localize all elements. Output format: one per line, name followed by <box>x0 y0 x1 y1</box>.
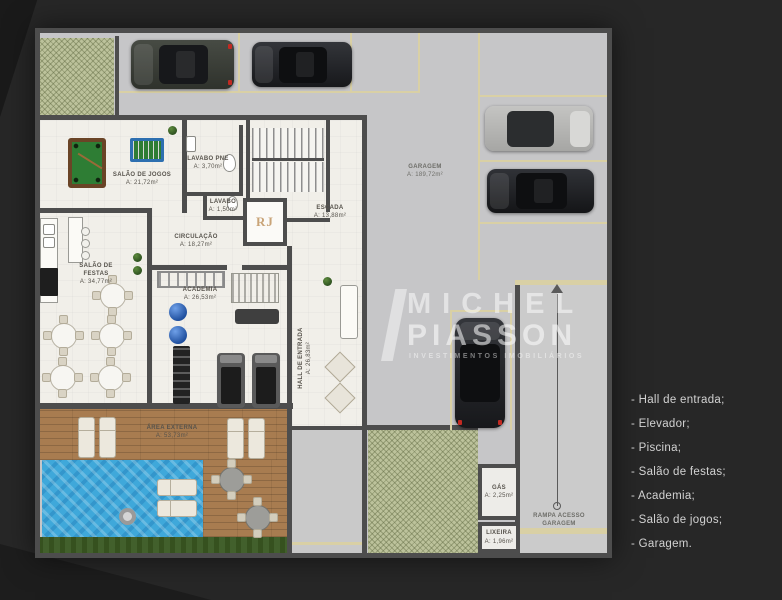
swimming-pool <box>42 460 203 537</box>
amenity-item: - Piscina; <box>631 442 726 456</box>
car-hood <box>490 173 509 209</box>
landscape-hatch-bottom <box>368 430 478 553</box>
table-top <box>51 323 77 349</box>
table-top <box>245 505 271 531</box>
sink-icon <box>186 136 196 152</box>
parking-stall-line <box>418 33 420 91</box>
sun-lounger <box>78 417 95 458</box>
room-label-gas: GÁS A: 2,25m² <box>485 484 514 500</box>
car-hood <box>255 46 273 83</box>
stair-treads-upper <box>252 128 324 158</box>
sun-lounger <box>99 417 116 458</box>
billiards-table <box>68 138 106 188</box>
wall <box>362 115 367 553</box>
walkway-step-line <box>292 542 362 545</box>
treadmill-console <box>220 355 242 363</box>
sun-lounger <box>227 418 244 459</box>
car-taillight <box>228 44 232 49</box>
wall <box>35 208 152 213</box>
pool-cue <box>78 153 103 170</box>
wall <box>147 265 227 270</box>
room-label-salao-jogos: SALÃO DE JOGOSA: 21,72m² <box>112 171 172 187</box>
dumbbell-rack <box>173 346 190 404</box>
room-label-rampa: RAMPA ACESSO GARAGEM <box>527 512 591 528</box>
wall <box>147 208 152 403</box>
car-sedan-black <box>252 42 352 87</box>
treadmill <box>252 353 280 408</box>
amenities-list: - Hall de entrada; - Elevador; - Piscina… <box>631 394 726 562</box>
plant-icon <box>133 266 142 275</box>
room-label-hall-entrada: HALL DE ENTRADAA: 26,83m² <box>297 313 313 403</box>
table-top <box>98 365 124 391</box>
reception-desk <box>340 285 358 339</box>
watermark-tagline: INVESTIMENTOS IMOBILIÁRIOS <box>409 353 584 360</box>
sun-lounger <box>248 418 265 459</box>
table-top <box>219 467 245 493</box>
chair-icon <box>243 475 252 484</box>
parking-stall-line <box>478 95 607 97</box>
car-taillight <box>498 420 502 425</box>
wall <box>287 246 292 553</box>
exercise-ball-icon <box>169 326 187 344</box>
chair-icon <box>58 357 67 366</box>
wall <box>326 120 330 212</box>
wall <box>242 265 292 270</box>
plant-icon <box>168 126 177 135</box>
wall <box>185 192 243 196</box>
watermark-brand-line1: MICHEL <box>407 288 584 321</box>
parking-stall-line <box>478 33 480 280</box>
chair-icon <box>106 389 115 398</box>
elevator-brand-monogram: RJ <box>256 214 274 230</box>
room-label-circulacao: CIRCULAÇÃOA: 18,27m² <box>172 233 220 249</box>
chair-icon <box>59 347 68 356</box>
ramp-top-stripe <box>515 280 612 285</box>
car-taillight <box>228 80 232 85</box>
wall <box>35 115 367 120</box>
car-roof <box>176 51 195 78</box>
treadmill <box>217 353 245 408</box>
exercise-ball-icon <box>169 303 187 321</box>
chair-icon <box>211 475 220 484</box>
car-roof <box>534 179 553 204</box>
chair-icon <box>122 373 131 382</box>
chair-icon <box>90 373 99 382</box>
cable-machine <box>231 273 279 303</box>
room-label-lavabo: LAVABOA: 1,50m² <box>203 198 243 214</box>
gym-bench <box>235 309 279 324</box>
chair-icon <box>58 389 67 398</box>
amenity-item: - Hall de entrada; <box>631 394 726 408</box>
table-top <box>50 365 76 391</box>
pool-lounger <box>157 479 197 496</box>
room-label-area-externa: ÁREA EXTERNAA: 53,73m² <box>143 424 201 440</box>
room-label-lavabo-pne: LAVABO PNEA: 3,70m² <box>187 155 229 171</box>
car-trunk <box>570 111 589 147</box>
amenity-item: - Salão de festas; <box>631 466 726 480</box>
bar-stool-icon <box>81 239 90 248</box>
car-roof <box>296 52 314 77</box>
table-top <box>99 323 125 349</box>
room-label-lixeira: LIXEIRA A: 1,96m² <box>485 529 514 545</box>
gas-room: GÁS A: 2,25m² <box>478 464 520 520</box>
chair-icon <box>107 315 116 324</box>
chair-icon <box>124 291 133 300</box>
bar-stool-icon <box>81 227 90 236</box>
patio-table <box>212 460 252 500</box>
patio-table <box>238 498 278 538</box>
watermark-brand-line2: PIASSON <box>407 319 577 353</box>
chair-icon <box>59 315 68 324</box>
treadmill-console <box>255 355 277 363</box>
wall <box>239 125 243 196</box>
treadmill-belt <box>221 367 241 404</box>
ramp-bottom-stripe <box>520 528 612 534</box>
chair-icon <box>74 373 83 382</box>
car-glass <box>507 111 555 147</box>
car-taillight <box>458 420 462 425</box>
room-label-salao-festas: SALÃO DE FESTASA: 34,77m² <box>66 262 126 286</box>
round-table <box>44 316 84 356</box>
wall <box>115 36 119 120</box>
elevator: RJ <box>243 198 287 246</box>
wall <box>292 426 362 430</box>
amenity-item: - Garagem. <box>631 538 726 552</box>
round-table <box>91 358 131 398</box>
landscape-hatch-top-left <box>38 38 114 120</box>
room-label-escada: ESCADAA: 13,88m² <box>307 204 353 220</box>
wall <box>607 28 612 558</box>
chair-icon <box>92 291 101 300</box>
plant-icon <box>323 277 332 286</box>
wall <box>35 28 612 33</box>
trash-room: LIXEIRA A: 1,96m² <box>478 522 520 553</box>
round-table <box>92 316 132 356</box>
kitchen-sink-icon <box>43 237 55 248</box>
parking-stall-line <box>118 91 420 93</box>
parking-stall-line <box>478 160 607 162</box>
pool-lounger <box>157 500 197 517</box>
chair-icon <box>107 347 116 356</box>
plant-icon <box>133 253 142 262</box>
amenity-item: - Salão de jogos; <box>631 514 726 528</box>
chair-icon <box>227 459 236 468</box>
treadmill-belt <box>256 367 276 404</box>
chair-icon <box>123 331 132 340</box>
chair-icon <box>75 331 84 340</box>
chair-icon <box>42 373 51 382</box>
chair-icon <box>253 529 262 538</box>
chair-icon <box>227 491 236 500</box>
round-table <box>43 358 83 398</box>
room-label-academia: ACADEMIAA: 26,53m² <box>175 286 225 302</box>
car-suv-dark <box>131 40 234 89</box>
car-hood <box>134 44 153 84</box>
parking-stall-line <box>478 222 607 224</box>
foosball-table <box>130 138 164 162</box>
scene: RJ <box>0 0 782 600</box>
bar-stool-icon <box>81 251 90 260</box>
amenity-item: - Elevador; <box>631 418 726 432</box>
chair-icon <box>91 331 100 340</box>
car-sedan-silver <box>485 106 593 151</box>
pool-ring-icon <box>119 508 136 525</box>
chair-icon <box>237 513 246 522</box>
wall <box>35 553 612 558</box>
room-label-garagem: GARAGEMA: 189,72m² <box>395 163 455 179</box>
stove-icon <box>40 268 58 296</box>
stair-landing-divider <box>252 158 324 161</box>
car-sedan-black <box>487 169 594 213</box>
ramp-line-origin <box>553 502 561 510</box>
entrance-walkway <box>292 430 362 553</box>
kitchen-sink-icon <box>43 224 55 235</box>
table-top <box>100 283 126 309</box>
amenity-item: - Academia; <box>631 490 726 504</box>
stair-treads-lower <box>252 162 324 192</box>
chair-icon <box>43 331 52 340</box>
grass-strip <box>38 537 292 553</box>
chair-icon <box>253 497 262 506</box>
chair-icon <box>269 513 278 522</box>
chair-icon <box>106 357 115 366</box>
wall <box>203 216 247 220</box>
parking-stall-line <box>238 33 240 91</box>
